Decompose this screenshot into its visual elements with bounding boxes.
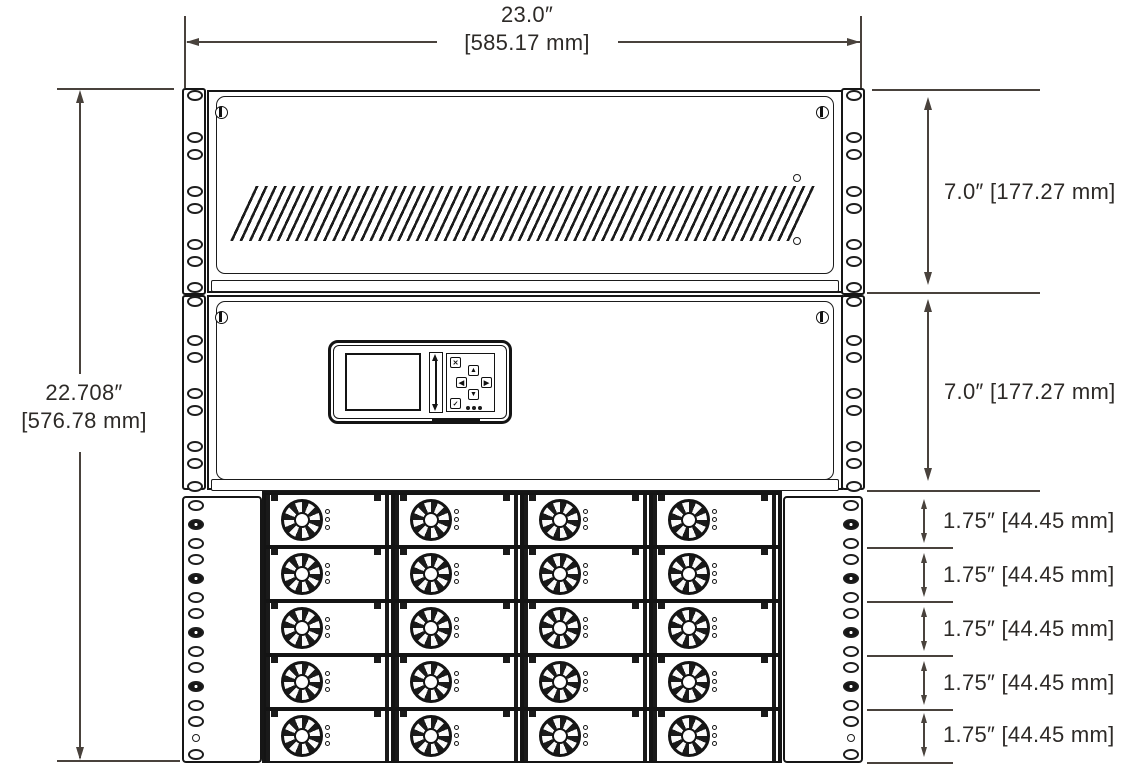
mounting-hole <box>188 554 204 565</box>
module-latch-bar <box>395 549 399 599</box>
fan-icon <box>410 607 452 649</box>
led-indicator <box>325 509 330 514</box>
mounting-hole <box>188 646 204 657</box>
fan-hub <box>423 728 439 744</box>
dim-row4-line <box>923 670 925 696</box>
arrow-left-button: ◀ <box>456 377 467 388</box>
led-indicator <box>454 579 459 584</box>
led-indicator <box>325 679 330 684</box>
top-shelf-bottom-lip <box>211 280 839 292</box>
rectifier-module <box>393 655 522 709</box>
led-indicator <box>583 625 588 630</box>
mounting-hole <box>843 538 859 549</box>
module-latch-bar <box>653 549 657 599</box>
module-latch-bar <box>643 711 647 761</box>
led-indicator <box>325 625 330 630</box>
led-indicator <box>712 679 717 684</box>
led-indicator <box>325 725 330 730</box>
rectifier-module <box>651 493 780 547</box>
mounting-hole <box>187 441 203 452</box>
dim-height-line-top <box>79 93 81 374</box>
led-indicator <box>454 525 459 530</box>
scroll-indicator <box>429 352 443 413</box>
module-latch-bar <box>395 495 399 545</box>
mounting-hole <box>187 132 203 143</box>
led-indicator <box>712 671 717 676</box>
led-indicator <box>583 733 588 738</box>
dim-row-tick-5 <box>867 762 953 764</box>
fan-hub <box>423 620 439 636</box>
mounting-hole <box>188 592 204 603</box>
led-indicator <box>454 509 459 514</box>
fan-icon <box>410 715 452 757</box>
dim-row5-arrow-down-icon <box>921 747 927 757</box>
mounting-hole <box>188 662 204 673</box>
mounting-hole-filled <box>188 573 204 584</box>
dim-topshelf-arrow-up-icon <box>924 97 932 110</box>
mounting-hole <box>846 405 862 416</box>
led-indicator <box>325 671 330 676</box>
mounting-hole <box>188 716 204 727</box>
mounting-hole <box>843 700 859 711</box>
status-led <box>472 406 476 410</box>
led-indicator <box>583 517 588 522</box>
dim-middle-shelf-label: 7.0″ [177.27 mm] <box>944 379 1116 405</box>
mounting-hole <box>846 458 862 469</box>
latch-tab <box>503 711 510 717</box>
mounting-hole <box>187 186 203 197</box>
led-indicator <box>454 563 459 568</box>
rectifier-module <box>651 601 780 655</box>
fan-hub <box>681 566 697 582</box>
led-indicator <box>583 679 588 684</box>
fan-hub <box>552 728 568 744</box>
led-indicator <box>712 517 717 522</box>
mounting-hole <box>187 388 203 399</box>
lcd-screen <box>345 353 421 411</box>
led-indicator <box>454 571 459 576</box>
latch-tab <box>271 549 278 555</box>
led-indicator <box>583 617 588 622</box>
status-led <box>478 406 482 410</box>
led-indicator <box>454 625 459 630</box>
fan-icon <box>539 607 581 649</box>
module-latch-bar <box>772 549 776 599</box>
module-latch-bar <box>266 549 270 599</box>
mounting-hole <box>187 335 203 346</box>
rack-ear-top-right <box>841 88 865 295</box>
dim-row3-arrow-down-icon <box>921 641 927 651</box>
mounting-hole <box>187 282 203 293</box>
dim-row-tick-4 <box>867 709 953 711</box>
dim-height-arrow-down-icon <box>76 747 84 760</box>
middle-shelf-faceplate <box>216 301 834 480</box>
mounting-hole <box>846 335 862 346</box>
vent-end-hole-top <box>793 174 801 182</box>
rack-assembly-drawing: 23.0″ [585.17 mm] 22.708″ [576.78 mm] 7.… <box>0 0 1135 774</box>
module-latch-bar <box>514 657 518 707</box>
latch-tab <box>632 549 639 555</box>
latch-tab <box>374 495 381 501</box>
latch-tab <box>761 495 768 501</box>
scroll-track <box>435 360 437 404</box>
latch-tab <box>400 603 407 609</box>
dim-row4-label: 1.75″ [44.45 mm] <box>943 670 1115 696</box>
screw-icon <box>816 106 829 119</box>
latch-tab <box>374 549 381 555</box>
mounting-hole <box>187 149 203 160</box>
led-indicator <box>454 741 459 746</box>
latch-tab <box>400 711 407 717</box>
led-indicator <box>712 733 717 738</box>
module-latch-bar <box>772 657 776 707</box>
latch-tab <box>400 657 407 663</box>
dim-row-tick-3 <box>867 655 953 657</box>
rectifier-module <box>393 493 522 547</box>
module-latch-bar <box>772 711 776 761</box>
mounting-hole-filled <box>843 681 859 692</box>
middle-shelf-bottom-lip <box>211 479 839 491</box>
latch-tab <box>374 657 381 663</box>
rectifier-module <box>264 547 393 601</box>
dim-row3-line <box>923 616 925 642</box>
mounting-hole <box>843 554 859 565</box>
dim-width-arrow-left-icon <box>186 38 199 46</box>
latch-tab <box>658 711 665 717</box>
fan-hub <box>681 728 697 744</box>
rack-ear-mid-left <box>182 295 206 490</box>
mounting-hole <box>843 749 859 760</box>
mounting-hole <box>187 481 203 492</box>
fan-icon <box>668 715 710 757</box>
fan-hub <box>552 620 568 636</box>
led-indicator <box>325 579 330 584</box>
mounting-hole <box>187 90 203 101</box>
dim-overall-width-inches: 23.0″ <box>417 2 637 28</box>
module-latch-bar <box>385 495 389 545</box>
mounting-hole-filled <box>843 627 859 638</box>
fan-icon <box>281 499 323 541</box>
rectifier-module <box>522 547 651 601</box>
mounting-hole <box>846 441 862 452</box>
led-indicator <box>712 525 717 530</box>
fan-icon <box>281 553 323 595</box>
latch-tab <box>658 603 665 609</box>
rack-ear-mid-right <box>841 295 865 490</box>
top-shelf-faceplate <box>216 96 834 274</box>
dim-row-tick-1 <box>867 547 953 549</box>
mounting-hole <box>843 500 859 511</box>
dim-width-line-right <box>618 41 860 43</box>
led-indicator <box>583 571 588 576</box>
latch-tab <box>529 657 536 663</box>
fan-icon <box>281 661 323 703</box>
fan-icon <box>539 715 581 757</box>
led-indicator <box>712 633 717 638</box>
mounting-hole <box>846 282 862 293</box>
module-latch-bar <box>653 711 657 761</box>
mounting-hole <box>187 458 203 469</box>
dim-width-ext-right <box>860 16 862 88</box>
led-indicator <box>325 741 330 746</box>
latch-tab <box>374 711 381 717</box>
led-indicator <box>454 733 459 738</box>
module-latch-bar <box>385 711 389 761</box>
mounting-hole <box>188 700 204 711</box>
fan-hub <box>294 566 310 582</box>
module-latch-bar <box>653 603 657 653</box>
led-indicator <box>583 563 588 568</box>
led-indicator <box>712 725 717 730</box>
fan-icon <box>539 661 581 703</box>
module-latch-bar <box>524 603 528 653</box>
mounting-hole <box>843 662 859 673</box>
dim-midshelf-arrow-down-icon <box>924 468 932 481</box>
led-indicator <box>583 633 588 638</box>
led-indicator <box>583 741 588 746</box>
arrow-up-button: ▲ <box>468 365 479 376</box>
fan-icon <box>668 553 710 595</box>
cancel-button: ✕ <box>450 357 461 368</box>
mounting-hole <box>187 296 203 307</box>
module-latch-bar <box>266 657 270 707</box>
led-indicator <box>325 617 330 622</box>
mounting-hole <box>846 256 862 267</box>
fan-icon <box>668 661 710 703</box>
module-latch-bar <box>653 657 657 707</box>
led-indicator <box>454 671 459 676</box>
mounting-hole <box>843 646 859 657</box>
mounting-hole <box>187 256 203 267</box>
latch-tab <box>658 657 665 663</box>
latch-tab <box>503 495 510 501</box>
fan-icon <box>668 607 710 649</box>
latch-tab <box>658 495 665 501</box>
latch-tab <box>529 711 536 717</box>
module-latch-bar <box>266 603 270 653</box>
mounting-hole-filled <box>188 627 204 638</box>
mounting-hole <box>187 352 203 363</box>
module-latch-bar <box>514 603 518 653</box>
dim-row2-arrow-down-icon <box>921 587 927 597</box>
mounting-hole <box>846 296 862 307</box>
scroll-down-icon <box>432 404 438 411</box>
dim-tick-shelf-bottom <box>867 490 1040 492</box>
latch-tab <box>503 549 510 555</box>
module-handle <box>432 418 480 422</box>
led-indicator <box>454 679 459 684</box>
fan-hub <box>552 512 568 528</box>
led-indicator <box>325 525 330 530</box>
screw-icon <box>215 106 228 119</box>
module-latch-bar <box>514 549 518 599</box>
dim-width-line-left <box>187 41 437 43</box>
latch-tab <box>271 603 278 609</box>
fan-hub <box>552 674 568 690</box>
led-indicator <box>325 633 330 638</box>
fan-icon <box>539 553 581 595</box>
rack-bracket-bottom-right <box>783 496 863 763</box>
rectifier-module <box>522 601 651 655</box>
mounting-hole <box>843 592 859 603</box>
fan-hub <box>294 674 310 690</box>
vent-slots <box>228 186 816 241</box>
module-latch-bar <box>643 549 647 599</box>
latch-tab <box>503 657 510 663</box>
led-indicator <box>454 687 459 692</box>
latch-tab <box>374 603 381 609</box>
module-latch-bar <box>385 549 389 599</box>
mounting-hole <box>846 186 862 197</box>
dim-row-tick-2 <box>867 601 953 603</box>
latch-tab <box>271 495 278 501</box>
dim-row5-label: 1.75″ [44.45 mm] <box>943 722 1115 748</box>
dim-row4-arrow-down-icon <box>921 695 927 705</box>
dim-row2-line <box>923 562 925 588</box>
mounting-hole <box>188 500 204 511</box>
latch-tab <box>761 657 768 663</box>
vent-end-hole-bottom <box>793 237 801 245</box>
led-indicator <box>712 563 717 568</box>
led-indicator <box>325 563 330 568</box>
latch-tab <box>632 495 639 501</box>
latch-tab <box>400 495 407 501</box>
mounting-hole <box>843 608 859 619</box>
fan-icon <box>410 499 452 541</box>
fan-icon <box>410 661 452 703</box>
fan-hub <box>681 512 697 528</box>
rectifier-module <box>393 601 522 655</box>
arrow-right-button: ▶ <box>481 377 492 388</box>
module-latch-bar <box>653 495 657 545</box>
latch-tab <box>658 549 665 555</box>
led-indicator <box>712 579 717 584</box>
mounting-hole <box>846 203 862 214</box>
dim-top-shelf-label: 7.0″ [177.27 mm] <box>944 179 1116 205</box>
module-latch-bar <box>395 603 399 653</box>
latch-tab <box>529 549 536 555</box>
mounting-hole <box>846 239 862 250</box>
fan-icon <box>668 499 710 541</box>
led-indicator <box>325 687 330 692</box>
rectifier-module <box>651 655 780 709</box>
latch-tab <box>529 603 536 609</box>
module-latch-bar <box>772 495 776 545</box>
led-indicator <box>583 579 588 584</box>
dim-midshelf-line <box>927 312 929 468</box>
mounting-hole-filled <box>188 519 204 530</box>
screw-icon <box>816 311 829 324</box>
mounting-hole <box>846 388 862 399</box>
dim-height-ext-bottom <box>57 760 180 762</box>
rectifier-module <box>522 709 651 763</box>
confirm-button: ✓ <box>450 398 461 409</box>
led-indicator <box>325 517 330 522</box>
module-latch-bar <box>395 711 399 761</box>
dim-tick-top <box>872 89 1040 91</box>
module-latch-bar <box>524 657 528 707</box>
dim-overall-height-mm: [576.78 mm] <box>0 408 174 434</box>
dim-row5-line <box>923 722 925 748</box>
latch-tab <box>632 603 639 609</box>
mounting-hole <box>843 716 859 727</box>
module-latch-bar <box>385 603 389 653</box>
dim-overall-height-inches: 22.708″ <box>0 380 174 406</box>
led-indicator <box>454 725 459 730</box>
rectifier-module <box>522 493 651 547</box>
led-indicator <box>712 741 717 746</box>
latch-tab <box>761 603 768 609</box>
fan-icon <box>539 499 581 541</box>
arrow-down-button: ▼ <box>468 389 479 400</box>
latch-tab <box>529 495 536 501</box>
dim-overall-width-mm: [585.17 mm] <box>417 30 637 56</box>
module-latch-bar <box>266 495 270 545</box>
module-latch-bar <box>772 603 776 653</box>
fan-icon <box>281 715 323 757</box>
fan-icon <box>410 553 452 595</box>
latch-tab <box>632 657 639 663</box>
rectifier-module <box>264 655 393 709</box>
module-latch-bar <box>514 711 518 761</box>
mounting-hole-filled <box>188 681 204 692</box>
dim-midshelf-arrow-up-icon <box>924 299 932 312</box>
led-indicator <box>583 525 588 530</box>
mounting-hole <box>187 239 203 250</box>
latch-tab <box>503 603 510 609</box>
mounting-hole <box>188 749 204 760</box>
fan-hub <box>681 620 697 636</box>
dim-tick-mid <box>867 292 1040 294</box>
fan-hub <box>423 512 439 528</box>
module-latch-bar <box>643 657 647 707</box>
rectifier-module <box>264 709 393 763</box>
dim-height-arrow-up-icon <box>76 90 84 103</box>
latch-tab <box>400 549 407 555</box>
rectifier-module <box>264 493 393 547</box>
mounting-hole <box>188 538 204 549</box>
fan-hub <box>294 620 310 636</box>
mounting-hole <box>187 203 203 214</box>
module-latch-bar <box>524 549 528 599</box>
mounting-hole <box>846 352 862 363</box>
dim-row1-line <box>923 508 925 534</box>
led-indicator <box>583 725 588 730</box>
rectifier-module <box>393 709 522 763</box>
mounting-hole <box>846 149 862 160</box>
fan-hub <box>552 566 568 582</box>
status-led <box>466 406 470 410</box>
latch-tab <box>632 711 639 717</box>
mounting-hole-filled <box>843 573 859 584</box>
module-latch-bar <box>385 657 389 707</box>
dim-width-ext-left <box>184 16 186 88</box>
led-indicator <box>712 687 717 692</box>
mounting-hole <box>187 405 203 416</box>
latch-tab <box>761 549 768 555</box>
fan-hub <box>423 566 439 582</box>
dim-topshelf-arrow-down-icon <box>924 272 932 285</box>
fan-hub <box>294 512 310 528</box>
led-indicator <box>454 517 459 522</box>
module-latch-bar <box>395 657 399 707</box>
led-indicator <box>325 733 330 738</box>
module-latch-bar <box>524 495 528 545</box>
mounting-hole <box>846 90 862 101</box>
led-indicator <box>325 571 330 576</box>
latch-tab <box>271 711 278 717</box>
led-indicator <box>583 509 588 514</box>
